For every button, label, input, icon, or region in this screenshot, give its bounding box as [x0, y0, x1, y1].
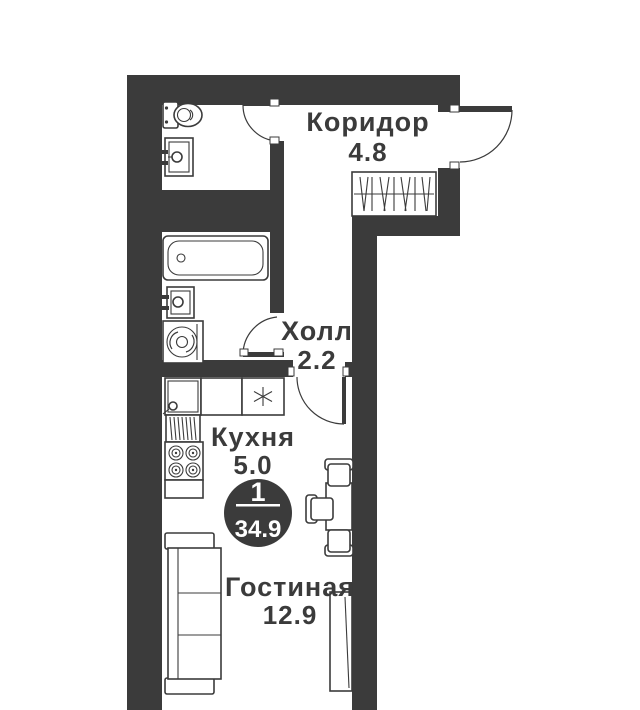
door-swing-arc: [297, 377, 344, 424]
door-bathroom: [240, 317, 284, 357]
door-toilet-room: [243, 99, 279, 144]
room-area: 2.2: [297, 345, 336, 375]
washbasin-toilet-room: [160, 138, 193, 176]
wall: [352, 216, 377, 710]
floor-plan-drawing: Коридор 4.8 Холл 2.2 Кухня 5.0 Гостиная …: [0, 0, 640, 710]
chair: [306, 495, 333, 523]
room-area: 4.8: [348, 137, 387, 167]
badge-rooms-count: 1: [250, 477, 265, 507]
wall: [270, 141, 284, 191]
kitchen-faucet: [169, 402, 177, 410]
sofa: [165, 533, 221, 694]
room-name: Кухня: [211, 422, 295, 452]
floor-plan: Коридор 4.8 Холл 2.2 Кухня 5.0 Гостиная …: [0, 0, 640, 710]
badge-divider: [236, 504, 280, 507]
wall: [127, 75, 162, 710]
area-badge: 1 34.9: [224, 477, 292, 547]
door-jamb: [240, 349, 248, 356]
door-jamb: [274, 349, 283, 356]
door-jamb: [270, 137, 279, 144]
room-label-corridor: Коридор 4.8: [306, 107, 429, 167]
door-jamb: [450, 162, 459, 169]
wardrobe: [352, 172, 436, 216]
room-name: Гостиная: [225, 572, 355, 602]
washbasin-bathroom: [161, 287, 194, 318]
chair: [325, 459, 353, 486]
wall: [127, 75, 460, 105]
room-name: Коридор: [306, 107, 429, 137]
door-kitchen: [288, 367, 349, 424]
door-jamb: [270, 99, 279, 106]
wall: [438, 168, 460, 236]
kitchen-counter: [163, 378, 284, 415]
door-jamb: [343, 367, 349, 376]
entrance-door: [450, 105, 512, 169]
stove: [165, 442, 203, 498]
door-jamb: [288, 367, 294, 376]
door-swing-arc: [460, 110, 512, 162]
bathtub: [163, 236, 268, 280]
wall: [127, 190, 284, 232]
wall: [270, 232, 284, 313]
room-name: Холл: [281, 316, 353, 346]
door-leaf: [459, 106, 512, 112]
wall: [127, 360, 293, 377]
room-area: 12.9: [263, 600, 318, 630]
drying-rack: [166, 415, 200, 442]
window: [330, 592, 352, 691]
door-swing-arc: [243, 105, 277, 141]
room-area: 5.0: [233, 450, 272, 480]
kitchen-cabinet: [165, 480, 203, 498]
washing-machine: [163, 321, 203, 363]
door-leaf: [342, 377, 346, 424]
chair: [325, 530, 353, 556]
door-jamb: [450, 105, 459, 112]
toilet: [163, 102, 202, 128]
room-label-kitchen: Кухня 5.0: [211, 422, 295, 480]
badge-total-area: 34.9: [235, 516, 282, 543]
